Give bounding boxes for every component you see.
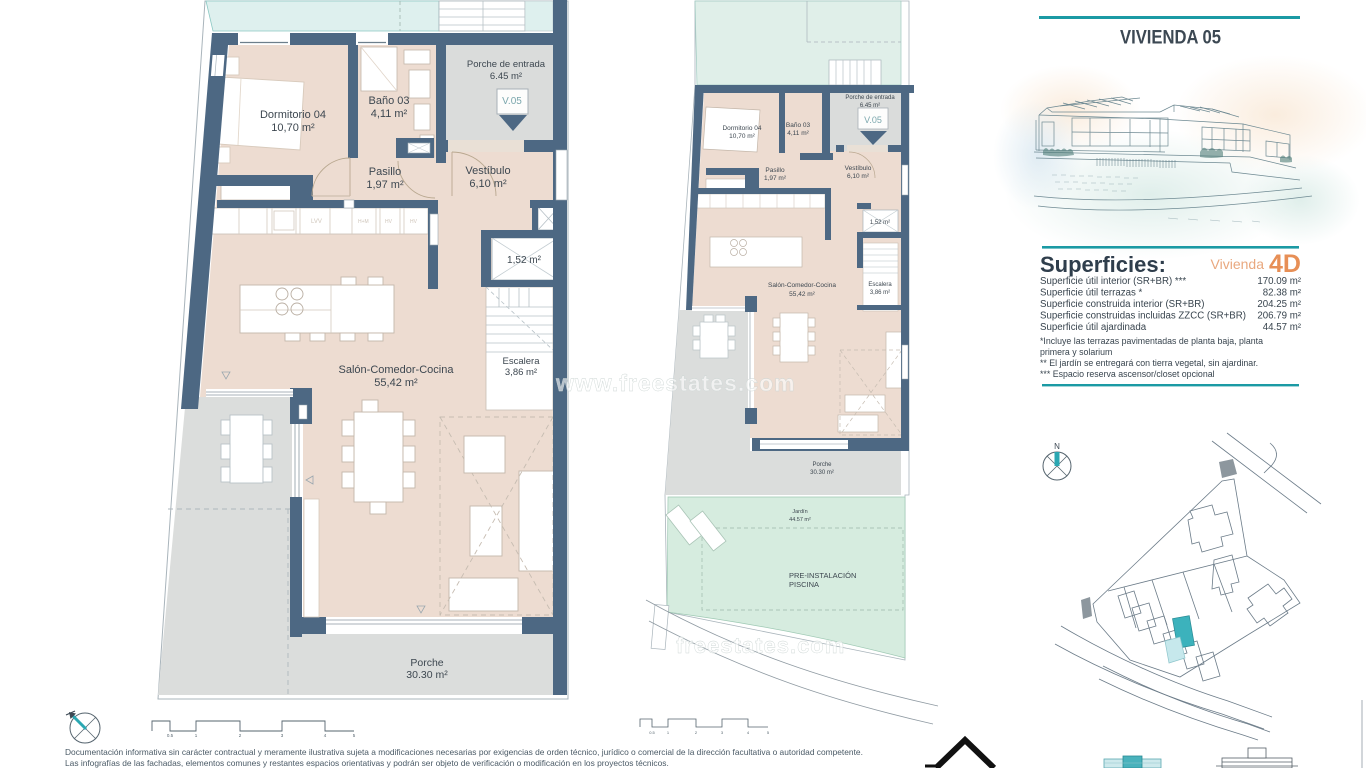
svg-text:V.05: V.05 — [864, 115, 882, 125]
svg-text:PISCINA: PISCINA — [789, 580, 819, 589]
svg-text:204.25 m²: 204.25 m² — [1257, 299, 1301, 310]
svg-text:Salón-Comedor-Cocina: Salón-Comedor-Cocina — [339, 364, 455, 376]
svg-text:Superficies:: Superficies: — [1040, 252, 1166, 277]
svg-text:206.79 m²: 206.79 m² — [1257, 311, 1301, 322]
svg-text:4,11 m²: 4,11 m² — [371, 108, 408, 120]
svg-text:Salón-Comedor-Cocina: Salón-Comedor-Cocina — [768, 282, 836, 289]
svg-text:3,86 m²: 3,86 m² — [505, 367, 537, 378]
svg-text:Porche de entrada: Porche de entrada — [467, 59, 546, 70]
svg-text:Escalera: Escalera — [868, 282, 892, 288]
svg-text:0.5: 0.5 — [167, 733, 174, 738]
svg-text:1,97 m²: 1,97 m² — [366, 179, 404, 191]
svg-text:** El jardín se entregará con: ** El jardín se entregará con tierra veg… — [1040, 358, 1258, 368]
svg-text:Vivienda: Vivienda — [1211, 256, 1265, 272]
svg-text:Baño 03: Baño 03 — [369, 95, 410, 107]
svg-text:Las infografías de las fachada: Las infografías de las fachadas, element… — [65, 758, 669, 768]
svg-text:Superficie útil terrazas *: Superficie útil terrazas * — [1040, 288, 1143, 299]
svg-text:6,10 m²: 6,10 m² — [847, 173, 870, 180]
svg-text:Vestíbulo: Vestíbulo — [845, 165, 872, 172]
svg-text:Superficie construida interior: Superficie construida interior (SR+BR) — [1040, 299, 1204, 310]
svg-text:Baño 03: Baño 03 — [786, 122, 811, 129]
svg-text:10,70 m²: 10,70 m² — [271, 122, 315, 134]
svg-text:www.freestates.com: www.freestates.com — [555, 370, 796, 396]
svg-text:1,52 m²: 1,52 m² — [870, 220, 890, 226]
svg-text:Porche: Porche — [812, 462, 832, 468]
svg-text:30.30 m²: 30.30 m² — [810, 470, 834, 476]
svg-text:6.45 m²: 6.45 m² — [490, 71, 522, 82]
svg-text:PRE-INSTALACIÓN: PRE-INSTALACIÓN — [789, 571, 856, 580]
svg-text:Pasillo: Pasillo — [369, 166, 401, 178]
svg-text:HV: HV — [385, 219, 393, 225]
svg-text:0.5: 0.5 — [649, 730, 655, 735]
svg-text:V.05: V.05 — [502, 96, 522, 107]
svg-text:170.09 m²: 170.09 m² — [1257, 276, 1301, 287]
svg-text:Escalera: Escalera — [503, 356, 541, 367]
svg-text:Superficie útil interior (SR+B: Superficie útil interior (SR+BR) *** — [1040, 276, 1186, 287]
svg-text:44.57 m²: 44.57 m² — [789, 517, 811, 523]
svg-text:N: N — [1054, 442, 1060, 451]
svg-text:30.30 m²: 30.30 m² — [406, 669, 448, 681]
svg-text:H+M: H+M — [358, 219, 369, 225]
svg-text:55,42 m²: 55,42 m² — [789, 291, 815, 298]
svg-text:Jardín: Jardín — [792, 509, 807, 515]
svg-text:1,97 m²: 1,97 m² — [764, 175, 787, 182]
svg-text:44.57 m²: 44.57 m² — [1263, 322, 1302, 333]
svg-text:Superficie construidas incluid: Superficie construidas incluidas ZZCC (S… — [1040, 311, 1246, 322]
svg-text:4D: 4D — [1269, 250, 1301, 278]
svg-text:*** Espacio reserva ascensor/c: *** Espacio reserva ascensor/closet opci… — [1040, 369, 1215, 379]
svg-text:82.38 m²: 82.38 m² — [1263, 288, 1302, 299]
svg-text:Dormitorio 04: Dormitorio 04 — [722, 125, 761, 132]
svg-text:6,10 m²: 6,10 m² — [469, 178, 507, 190]
svg-text:Dormitorio 04: Dormitorio 04 — [260, 109, 326, 121]
svg-text:primera y solarium: primera y solarium — [1040, 347, 1112, 357]
svg-text:55,42 m²: 55,42 m² — [374, 377, 418, 389]
svg-text:Documentación informativa sin: Documentación informativa sin carácter c… — [65, 747, 863, 757]
svg-text:Pasillo: Pasillo — [765, 167, 785, 174]
svg-text:4,11 m²: 4,11 m² — [787, 130, 809, 137]
svg-text:VIVIENDA 05: VIVIENDA 05 — [1120, 28, 1221, 49]
svg-text:*Incluye las terrazas paviment: *Incluye las terrazas pavimentadas de pl… — [1040, 336, 1263, 346]
svg-text:freestates.com: freestates.com — [676, 633, 845, 658]
svg-text:Porche: Porche — [410, 657, 443, 669]
svg-text:LVV: LVV — [311, 219, 322, 225]
svg-text:1,52 m²: 1,52 m² — [507, 255, 542, 266]
svg-text:10,70 m²: 10,70 m² — [729, 133, 755, 140]
svg-text:3,86 m²: 3,86 m² — [870, 290, 890, 296]
svg-text:Superficie útil ajardinada: Superficie útil ajardinada — [1040, 322, 1147, 333]
svg-text:6.45 m²: 6.45 m² — [860, 103, 880, 109]
svg-text:Porche de entrada: Porche de entrada — [845, 95, 895, 101]
svg-text:HV: HV — [410, 219, 418, 225]
svg-text:Vestíbulo: Vestíbulo — [465, 165, 510, 177]
